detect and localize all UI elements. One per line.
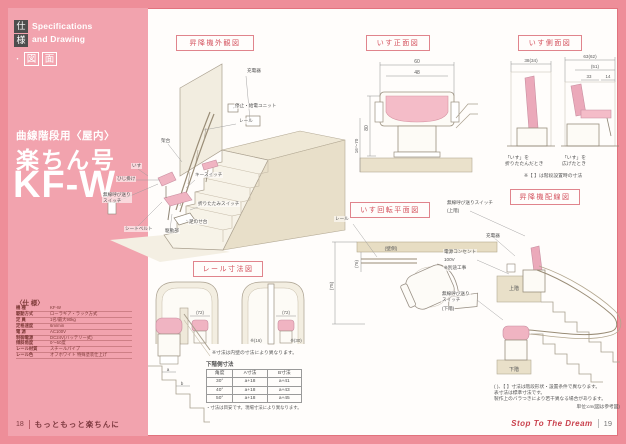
title-wiring-diagram: 昇降機配線図 — [510, 189, 580, 205]
chair-side-view-drawing: 38(34) 63(62) (51) 33 14 — [503, 52, 619, 154]
dim-open-depth: 63(62) — [583, 54, 597, 59]
rail-dim-right-width: (72) — [282, 310, 290, 315]
lower-floor-table-note: ・寸法は目安です。現場寸法により異なります。 — [206, 405, 310, 411]
label-chair: いす — [131, 163, 142, 169]
label-lower-floor: 下階 — [509, 366, 519, 373]
dim-seat-depth: 33 — [587, 74, 592, 79]
label-upper-floor: 上階 — [509, 285, 519, 292]
label-seatbelt: シートベルト — [124, 226, 154, 232]
label-fold-switch: 折りたたみスイッチ — [197, 201, 240, 207]
label-upper-floor-tag: (上階) — [446, 208, 460, 214]
dim-front-gap: 14 — [606, 74, 611, 79]
dim-plan-rail: (76) — [354, 260, 359, 268]
rotation-plan-drawing: (壁側) (75) (76) — [325, 212, 497, 330]
lower-floor-table: 角度 A寸法 B寸法 30°a+18a+41 40°a+18a+43 50°a+… — [206, 369, 302, 403]
label-outlet-voltage: 100V — [443, 257, 456, 263]
dim-folded-depth: 38(34) — [524, 58, 538, 63]
note-line: 製作上のバラつきにより若干異なる場合があります。 — [494, 396, 620, 402]
footer-right: Stop To The Dream 19 — [511, 419, 612, 428]
caption-chair-folded: 「いす」を 折りたたんだとき — [505, 156, 543, 168]
label-remote-switch: 無線呼び送り スイッチ — [102, 192, 132, 203]
exterior-view-drawing — [100, 52, 355, 252]
drawing-tab: ・ 図 面 — [14, 52, 57, 66]
tab-zumen-2: 面 — [42, 52, 57, 66]
dim-height: 80 — [364, 125, 370, 131]
label-frame: 架台 — [160, 138, 171, 144]
rail-dim-right-bottom-b: ※(30) — [290, 338, 302, 343]
dim-floor-range: 16〜70 — [354, 138, 359, 153]
table-row: 30°a+18a+41 — [207, 378, 302, 386]
rail-note: ※寸法は内壁の寸法により異なります。 — [212, 349, 297, 356]
footer-slogan-right: Stop To The Dream — [511, 419, 593, 428]
lower-floor-table-block: 下階側寸法 角度 A寸法 B寸法 30°a+18a+41 40°a+18a+43… — [206, 360, 310, 411]
table-row: 40°a+18a+43 — [207, 386, 302, 394]
tab-kanji-1: 仕 — [14, 20, 28, 33]
side-view-note: ※【 】は階段設置時の寸法 — [524, 172, 582, 179]
title-exterior-view: 昇降機外観図 — [176, 35, 254, 51]
unit-note: 単位:cm(図は参考図) — [494, 404, 620, 410]
label-outlet-work-note: ※別途工事 — [443, 265, 467, 271]
label-wireless-switch-lower: 無線呼び送り スイッチ — [441, 291, 471, 302]
label-feed-unit: 停止・給電ユニット — [234, 103, 277, 109]
footer-slogan-left: もっともっと楽ちんに — [35, 419, 120, 430]
label-wall-side: (壁側) — [385, 245, 398, 252]
lower-floor-table-title: 下階側寸法 — [206, 360, 310, 368]
caption-chair-open: 「いす」を 広げたとき — [562, 156, 586, 168]
sketch-dim-a: a — [167, 367, 170, 372]
footer-divider — [598, 419, 599, 428]
footer-divider — [29, 420, 30, 429]
footer-left: 18 もっともっと楽ちんに — [16, 419, 120, 430]
sketch-dim-b: b — [181, 381, 184, 386]
spec-table: 機 種KF-W 駆動方式ローラギア・ラック方式 定 員1名/最大90kg 定格速… — [16, 306, 132, 359]
dim-width-seat: 48 — [414, 70, 420, 76]
tab-kanji-2: 様 — [14, 34, 28, 47]
label-wiring-charger: 充電器 — [485, 233, 501, 239]
table-row: レール色オフホワイト 特殊塗装仕上げ — [16, 353, 132, 359]
dim-width-total: 60 — [414, 59, 420, 65]
bullet: ・ — [14, 54, 21, 64]
wiring-notes: ( )、【 】寸法は階段形状・設置条件で異なります。 表寸法は標準寸法です。 製… — [494, 384, 620, 410]
dim-open-inner: (51) — [591, 64, 600, 69]
chair-front-view-drawing: 60 48 80 16〜70 — [356, 52, 478, 180]
dim-plan-depth: (75) — [329, 281, 335, 290]
section-tab: 仕 様 Specifications and Drawing — [14, 20, 92, 47]
wiring-diagram-drawing: 上階 下階 — [495, 208, 620, 382]
label-key-switch: キースイッチ — [194, 172, 223, 178]
tab-zumen-1: 図 — [24, 52, 39, 66]
title-chair-side-view: いす側面図 — [518, 35, 582, 51]
label-rail: レール — [238, 118, 254, 124]
rail-dim-right-bottom-a: ※(16) — [250, 338, 262, 343]
label-rotation-rail: レール — [334, 216, 350, 222]
table-row: 50°a+18a+45 — [207, 394, 302, 402]
label-power-outlet: 電源コンセント — [443, 249, 477, 255]
label-wireless-switch-upper: 無線呼び送りスイッチ — [446, 200, 494, 206]
tab-english: Specifications and Drawing — [32, 20, 92, 47]
page-number-right: 19 — [604, 419, 612, 428]
lower-floor-sketch: a b — [148, 310, 210, 436]
tab-kanji: 仕 様 — [14, 20, 28, 47]
label-armrest: ひじ掛け — [116, 176, 136, 182]
label-drive-unit: 駆動部 — [164, 228, 180, 234]
page-number-left: 18 — [16, 421, 24, 428]
label-footrest: 足のせ台 — [188, 219, 208, 225]
table-header-row: 角度 A寸法 B寸法 — [207, 370, 302, 378]
label-lower-floor-tag: (下階) — [441, 306, 455, 312]
catalog-page: 仕 様 Specifications and Drawing ・ 図 面 曲線階… — [0, 0, 626, 444]
title-chair-front-view: いす正面図 — [366, 35, 430, 51]
label-charger: 充電器 — [246, 68, 262, 74]
